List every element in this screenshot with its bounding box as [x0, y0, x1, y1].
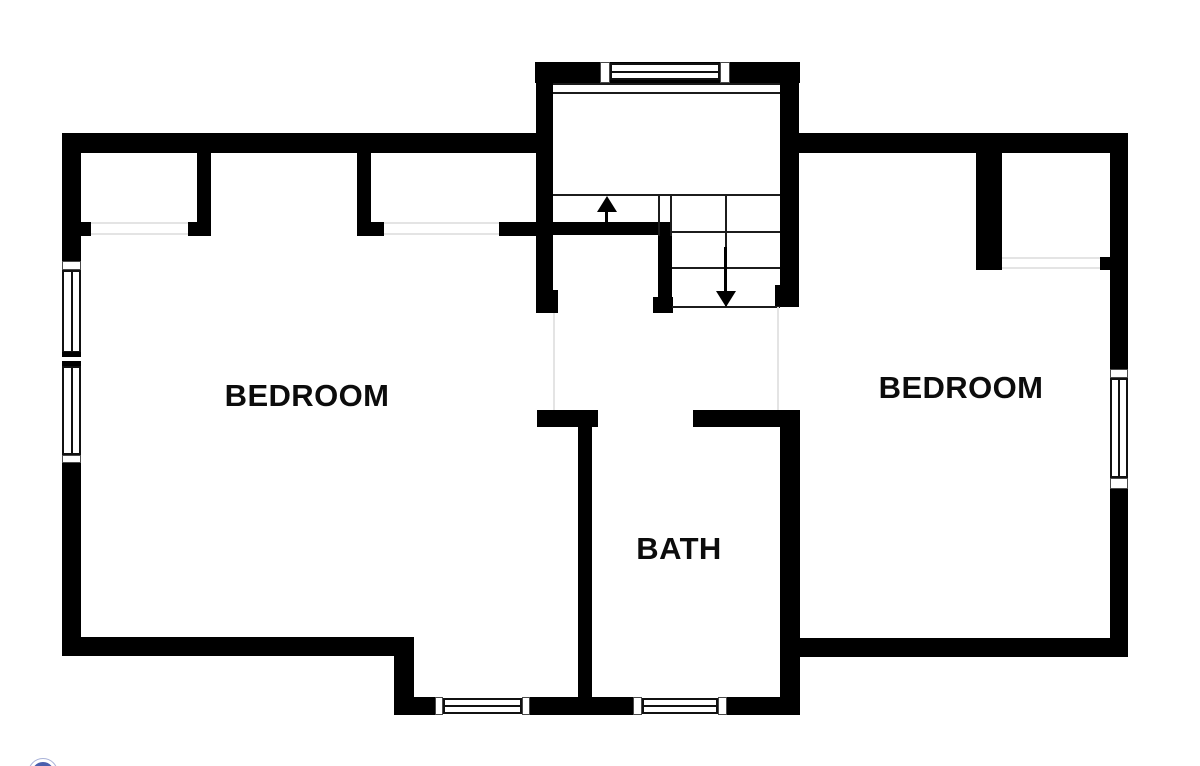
closet2-left-jamb [357, 222, 384, 236]
top-wall-right [799, 133, 1128, 153]
window-mullion [62, 352, 81, 357]
bath-window [642, 698, 718, 714]
entry-left-wall-stub [536, 290, 558, 313]
hall-right-door-opening [777, 307, 779, 410]
left-window-lower [62, 366, 81, 455]
window-centerline [643, 705, 717, 707]
right-closet-opening [1002, 267, 1100, 269]
window-sill [435, 697, 443, 715]
arrow-down-icon [716, 291, 736, 307]
bottom-window-left [443, 698, 522, 714]
window-sill [1110, 478, 1128, 489]
right-closet-jamb [1100, 257, 1110, 270]
left-bedroom-bottom-wall [62, 637, 414, 656]
window-centerline [71, 367, 73, 454]
right-closet-wall [976, 153, 1002, 270]
right-closet-opening [1002, 257, 1100, 259]
window-sill [1110, 369, 1128, 378]
arrow-down-shaft [724, 247, 727, 293]
window-sill [62, 455, 81, 463]
bath-top-wall-right [693, 410, 793, 427]
closet2-opening [384, 233, 499, 235]
entry-right-wall-stub [775, 285, 799, 307]
floorplan-canvas: BEDROOM BEDROOM BATH [0, 0, 1200, 766]
room-label-bedroom-left: BEDROOM [225, 378, 390, 414]
window-sill [720, 62, 730, 83]
top-wall-left [62, 133, 538, 153]
bottom-wall-segment [530, 697, 633, 715]
stair-run-divider [658, 194, 660, 236]
bottom-wall-segment [394, 697, 435, 715]
closet1-opening [91, 233, 188, 235]
stair-run-divider [670, 194, 672, 236]
right-window [1110, 378, 1128, 478]
closet1-left-jamb [62, 222, 91, 236]
closet1-opening [91, 222, 188, 224]
closet2-right-jamb [499, 222, 538, 236]
outer-wall-right-lower [1110, 489, 1128, 655]
arrow-up-shaft [605, 209, 608, 223]
room-label-bedroom-right: BEDROOM [879, 370, 1044, 406]
outer-wall-left-upper [62, 133, 81, 261]
entry-landing-edge [553, 83, 780, 94]
entry-window [610, 63, 720, 80]
stair-tread-line [553, 194, 780, 196]
entry-left-wall [536, 62, 553, 313]
window-centerline [444, 705, 521, 707]
stair-wall-vertical-stub [653, 297, 673, 313]
outer-wall-right-upper [1110, 134, 1128, 369]
brand-logo [28, 752, 59, 766]
outer-wall-left-lower [62, 463, 81, 656]
entry-right-wall [780, 62, 799, 307]
bath-left-wall [578, 410, 592, 715]
room-label-bath: BATH [636, 531, 721, 567]
window-sill [633, 697, 642, 715]
window-sill [718, 697, 727, 715]
hall-left-door-opening [553, 313, 555, 410]
window-sill [62, 261, 81, 270]
closet2-opening [384, 222, 499, 224]
right-bedroom-bottom-wall [800, 638, 1128, 657]
window-centerline [71, 271, 73, 352]
bath-right-wall [780, 410, 800, 715]
bottom-wall-segment [727, 697, 800, 715]
window-sill [522, 697, 530, 715]
window-sill [600, 62, 610, 83]
window-centerline [1118, 379, 1120, 477]
stair-wall-horizontal [553, 222, 670, 235]
window-centerline [611, 71, 719, 73]
left-window-upper [62, 270, 81, 353]
closet1-right-jamb [188, 222, 211, 236]
